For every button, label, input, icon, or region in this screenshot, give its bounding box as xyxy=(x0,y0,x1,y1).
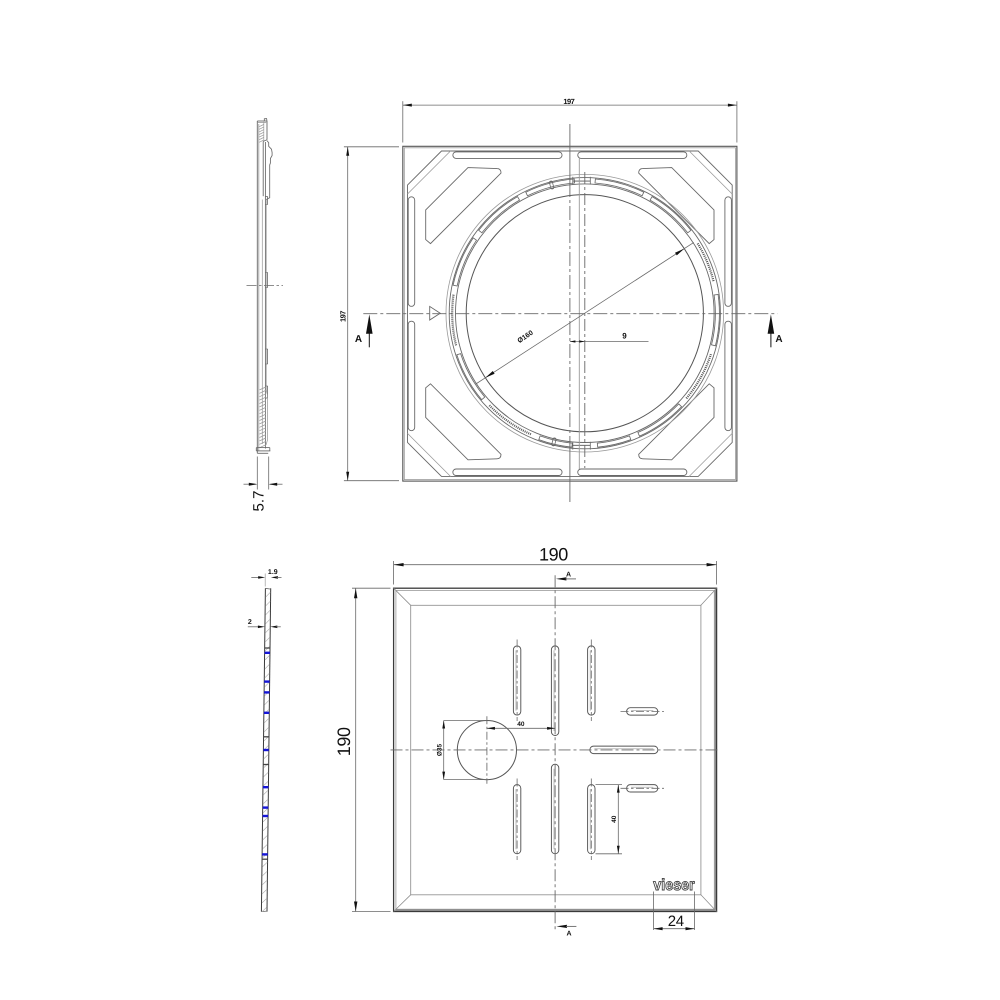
svg-text:5.7: 5.7 xyxy=(250,491,267,512)
svg-text:A: A xyxy=(355,334,362,345)
svg-text:1.9: 1.9 xyxy=(268,569,278,576)
svg-text:197: 197 xyxy=(563,97,574,106)
svg-text:197: 197 xyxy=(338,311,347,322)
svg-text:9: 9 xyxy=(622,332,627,341)
svg-text:vieser: vieser xyxy=(653,877,695,894)
svg-text:190: 190 xyxy=(539,545,568,565)
svg-text:2: 2 xyxy=(248,619,252,626)
svg-text:40: 40 xyxy=(517,721,525,728)
svg-text:24: 24 xyxy=(668,913,684,930)
svg-text:A: A xyxy=(566,931,571,938)
svg-text:A: A xyxy=(775,334,782,345)
svg-text:Ø160: Ø160 xyxy=(516,329,535,345)
svg-text:190: 190 xyxy=(334,727,354,756)
svg-text:A: A xyxy=(566,572,571,579)
svg-text:40: 40 xyxy=(611,815,618,823)
svg-text:Ø35: Ø35 xyxy=(437,743,444,756)
